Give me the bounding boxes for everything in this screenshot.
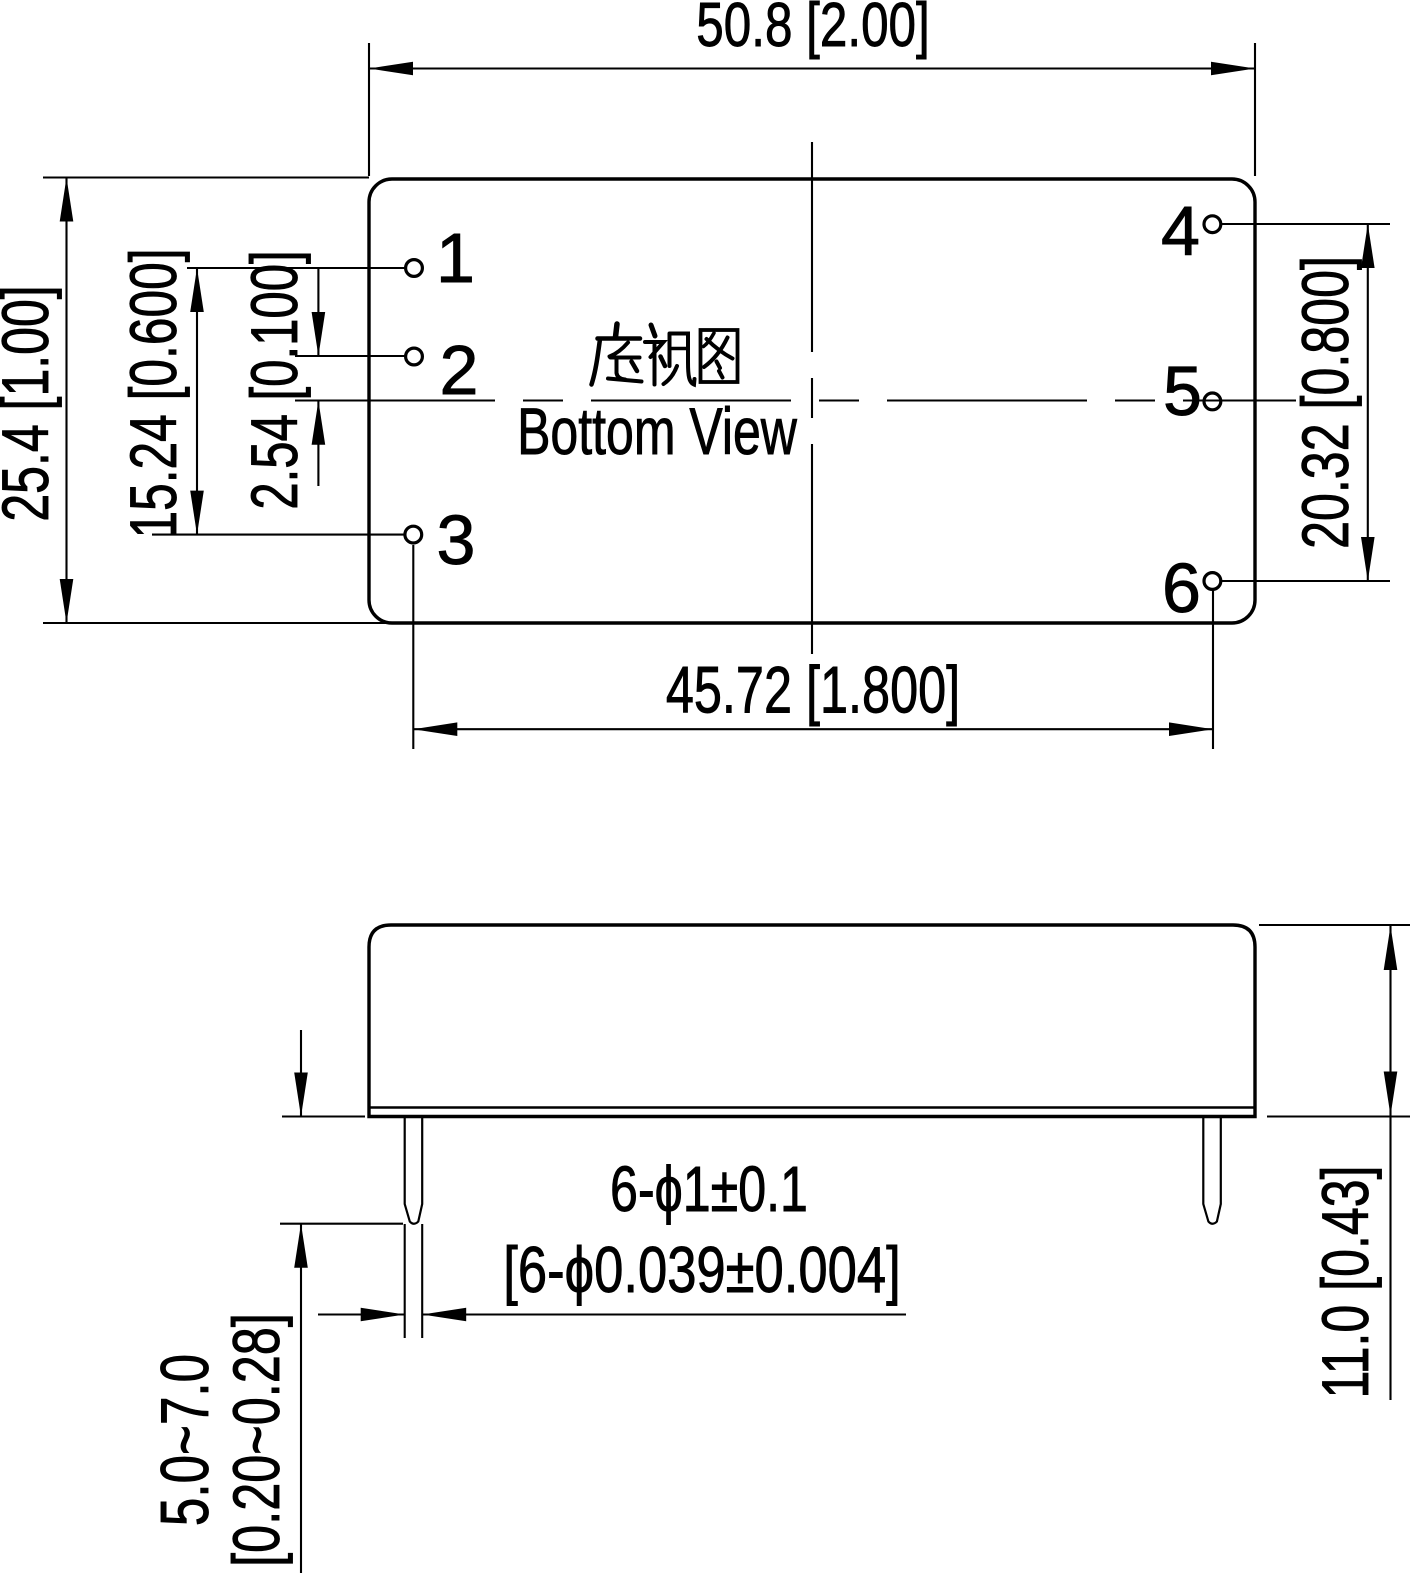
- svg-text:Bottom View: Bottom View: [517, 395, 797, 468]
- svg-text:4: 4: [1161, 192, 1200, 270]
- svg-text:6: 6: [1162, 549, 1201, 627]
- svg-text:1: 1: [436, 219, 475, 297]
- svg-text:25.4 [1.00]: 25.4 [1.00]: [0, 285, 63, 521]
- svg-text:11.0 [0.43]: 11.0 [0.43]: [1309, 1166, 1382, 1399]
- svg-text:50.8 [2.00]: 50.8 [2.00]: [696, 0, 929, 59]
- svg-text:2.54 [0.100]: 2.54 [0.100]: [238, 250, 312, 509]
- svg-text:15.24 [0.600]: 15.24 [0.600]: [117, 248, 190, 538]
- svg-text:45.72 [1.800]: 45.72 [1.800]: [666, 654, 960, 727]
- svg-text:20.32 [0.800]: 20.32 [0.800]: [1289, 256, 1362, 549]
- svg-text:3: 3: [437, 501, 476, 579]
- svg-text:2: 2: [440, 331, 479, 409]
- svg-text:[0.20~0.28]: [0.20~0.28]: [221, 1313, 294, 1567]
- svg-text:[6-ϕ0.039±0.004]: [6-ϕ0.039±0.004]: [503, 1233, 900, 1307]
- svg-text:5.0~7.0: 5.0~7.0: [147, 1354, 223, 1526]
- svg-text:6-ϕ1±0.1: 6-ϕ1±0.1: [610, 1154, 808, 1225]
- svg-text:5: 5: [1163, 352, 1202, 430]
